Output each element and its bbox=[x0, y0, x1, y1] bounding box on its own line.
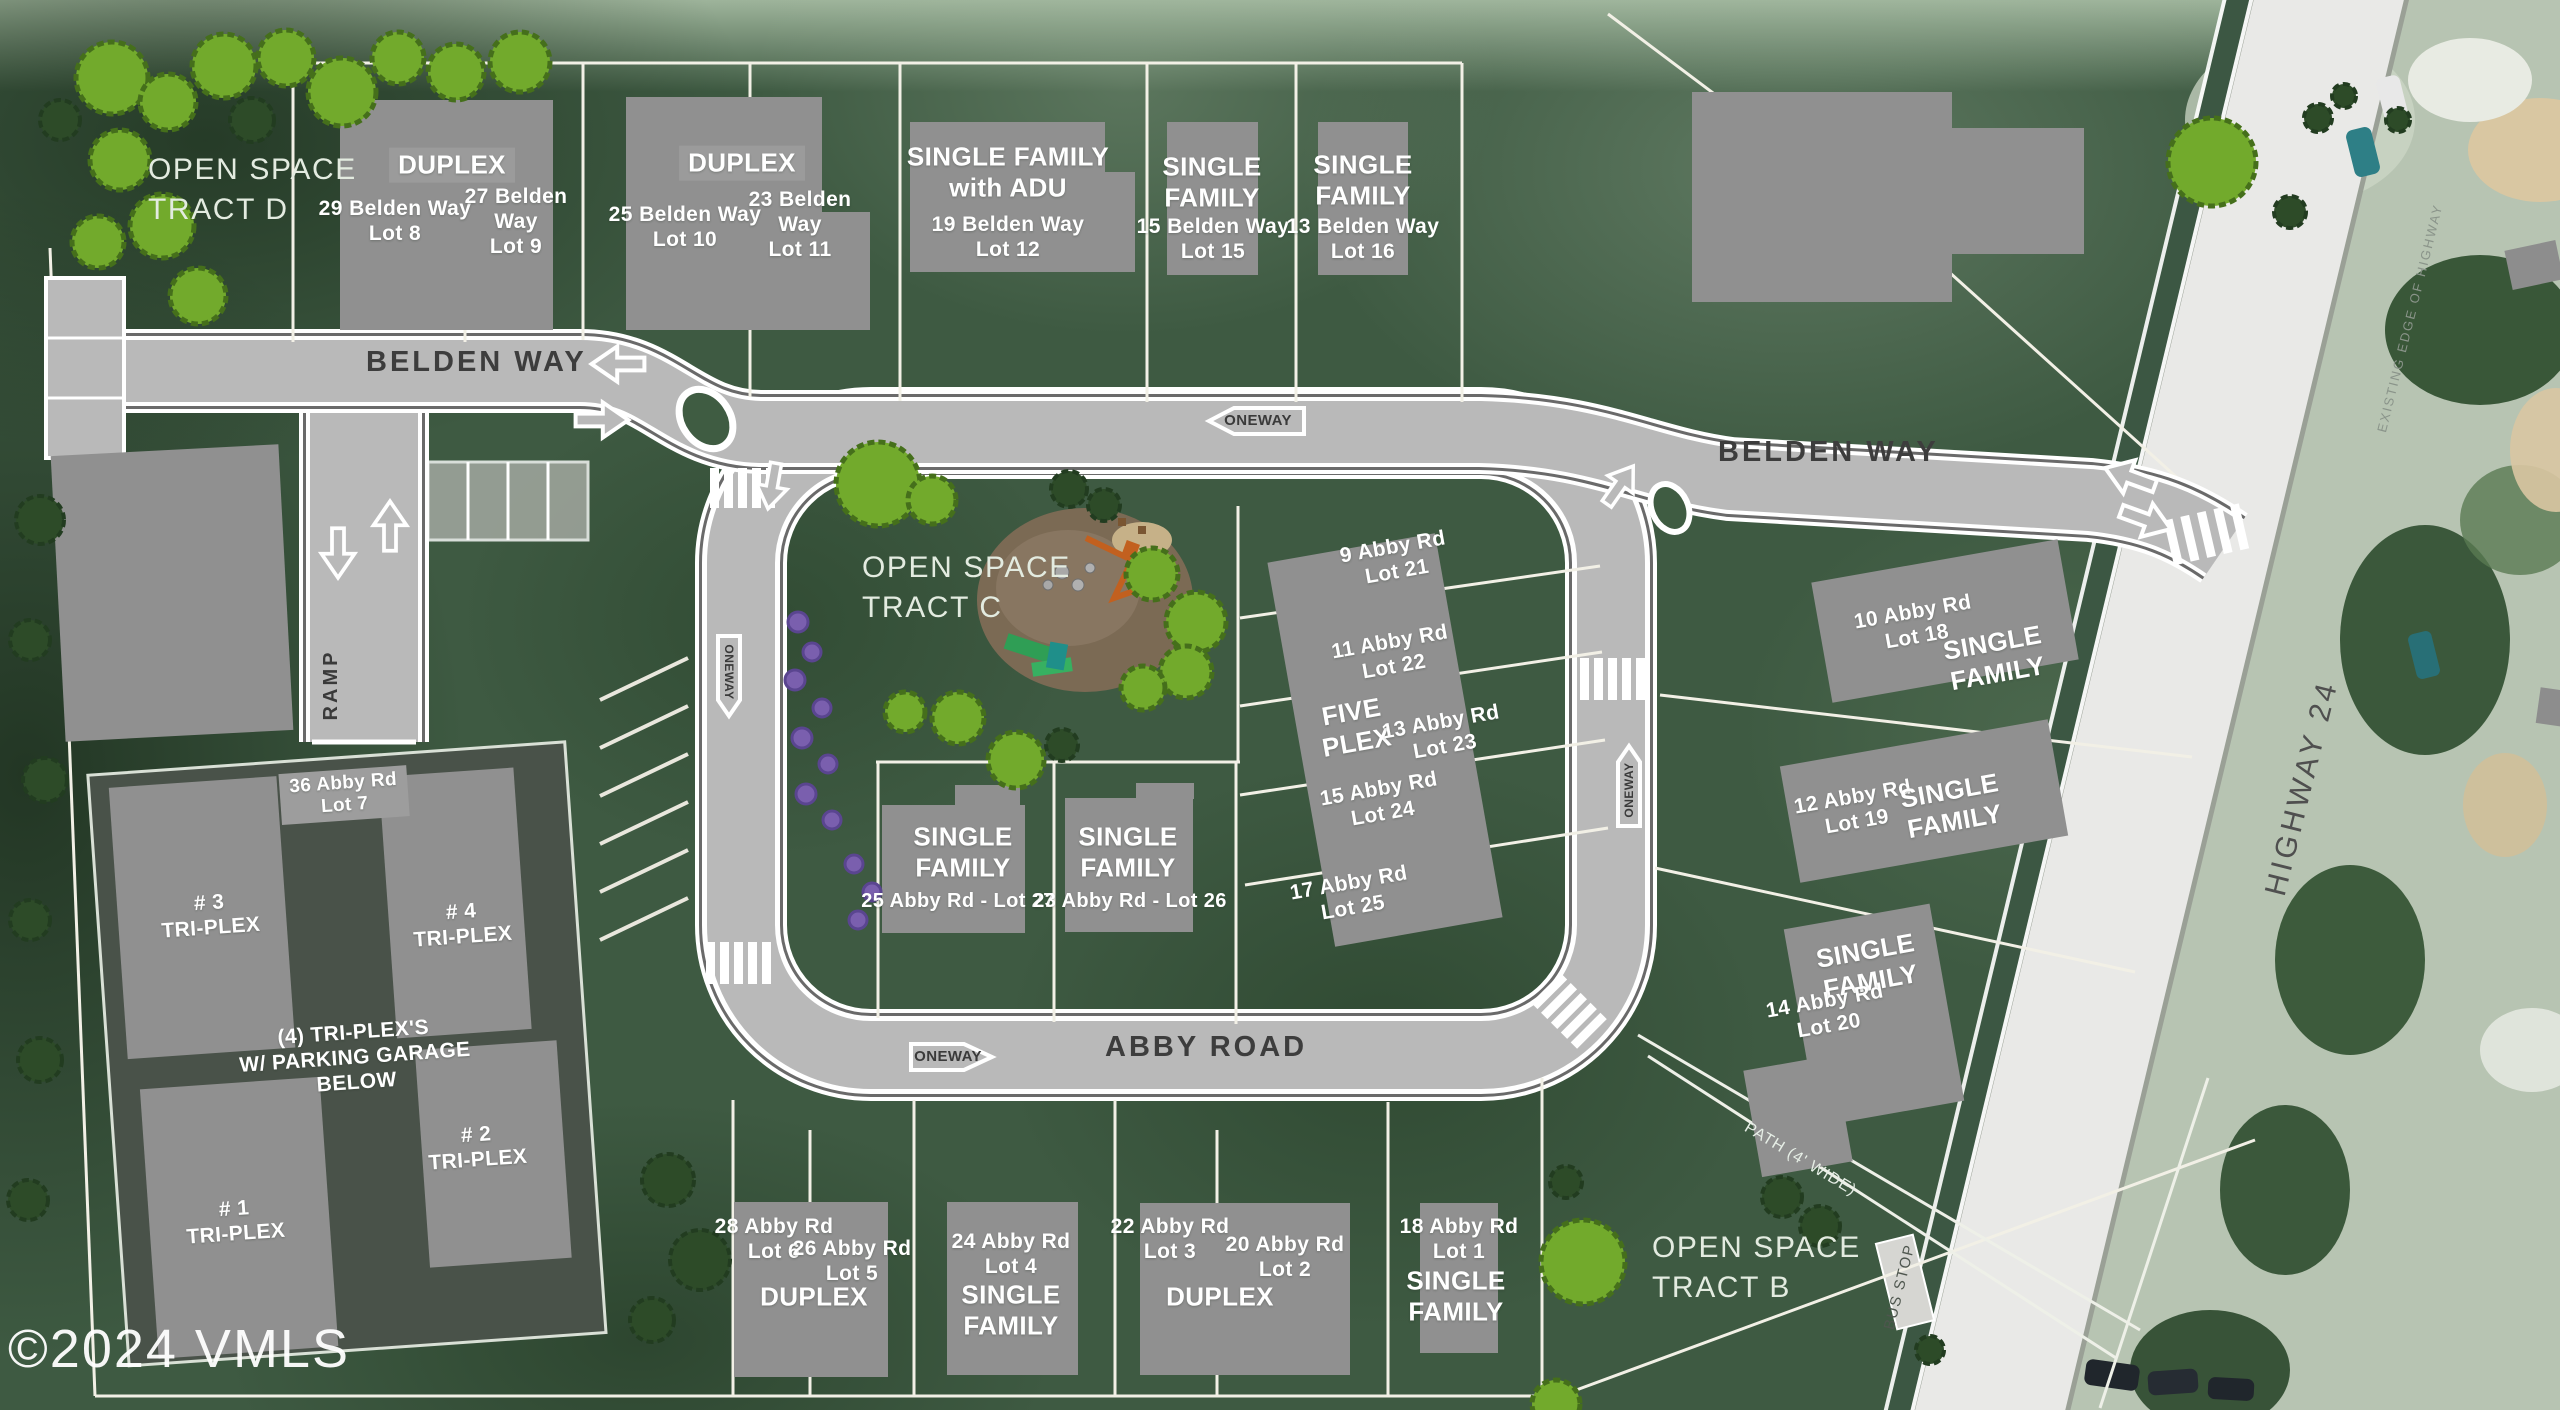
oneway-top-label: ONEWAY bbox=[1224, 412, 1292, 430]
duplex-6-5-label: DUPLEX bbox=[760, 1282, 868, 1313]
open-space-tract-b-label: OPEN SPACETRACT B bbox=[1652, 1228, 1861, 1307]
lot9-label: 27 Belden WayLot 9 bbox=[463, 185, 569, 259]
lot8-label: 29 Belden WayLot 8 bbox=[319, 197, 472, 247]
lot3-label: 22 Abby RdLot 3 bbox=[1111, 1215, 1230, 1265]
lot24-label: 15 Abby RdLot 24 bbox=[1318, 767, 1444, 836]
duplex-3-2-label: DUPLEX bbox=[1166, 1282, 1274, 1313]
lot15-type-label: SINGLEFAMILY bbox=[1162, 151, 1261, 212]
lot12-type-label: SINGLE FAMILYwith ADU bbox=[907, 141, 1109, 202]
triplex-3-label: # 3TRI-PLEX bbox=[159, 888, 261, 944]
belden-way-east-label: BELDEN WAY bbox=[1718, 435, 1939, 469]
belden-way-west-label: BELDEN WAY bbox=[366, 345, 587, 379]
duplex-10-11-label: DUPLEX bbox=[679, 146, 805, 181]
lot25-label: 17 Abby RdLot 25 bbox=[1288, 861, 1414, 930]
lot27-type-label: SINGLEFAMILY bbox=[913, 821, 1012, 882]
lot23-label: 13 Abby RdLot 23 bbox=[1380, 700, 1506, 769]
lot2-label: 20 Abby RdLot 2 bbox=[1226, 1233, 1345, 1283]
oneway-loop-east-label: ONEWAY bbox=[1622, 762, 1636, 817]
lot26-address-label: 23 Abby Rd - Lot 26 bbox=[1033, 890, 1227, 914]
lot21-label: 9 Abby RdLot 21 bbox=[1338, 526, 1452, 593]
lot15-address-label: 15 Belden WayLot 15 bbox=[1137, 215, 1290, 265]
lot4-type-label: SINGLEFAMILY bbox=[961, 1279, 1060, 1340]
lot4-address-label: 24 Abby RdLot 4 bbox=[952, 1230, 1071, 1280]
triplex-2-label: # 2TRI-PLEX bbox=[426, 1120, 528, 1176]
oneway-abby-label: ONEWAY bbox=[914, 1048, 982, 1066]
abby-road-label: ABBY ROAD bbox=[1105, 1030, 1307, 1064]
lot19-type-label: SINGLEFAMILY bbox=[1898, 767, 2006, 845]
highway-24-label: HIGHWAY 24 bbox=[2258, 676, 2346, 899]
open-space-tract-c-label: OPEN SPACETRACT C bbox=[862, 548, 1071, 627]
lot12-address-label: 19 Belden WayLot 12 bbox=[932, 213, 1085, 263]
triplex-note-label: (4) TRI-PLEX'SW/ PARKING GARAGEBELOW bbox=[237, 1013, 473, 1103]
lot7-label: 36 Abby RdLot 7 bbox=[278, 765, 409, 825]
lot10-label: 25 Belden WayLot 10 bbox=[609, 203, 762, 253]
lot11-label: 23 Belden WayLot 11 bbox=[747, 188, 853, 262]
triplex-4-label: # 4TRI-PLEX bbox=[411, 897, 513, 953]
lot1-type-label: SINGLEFAMILY bbox=[1406, 1265, 1505, 1326]
oneway-loop-west-label: ONEWAY bbox=[722, 644, 736, 699]
watermark: ©2024 VMLS bbox=[8, 1318, 350, 1382]
site-plan: OPEN SPACETRACT D OPEN SPACETRACT C OPEN… bbox=[0, 0, 2560, 1410]
path-width-label: PATH (4' WIDE) bbox=[1740, 1119, 1859, 1201]
lot16-address-label: 13 Belden WayLot 16 bbox=[1287, 215, 1440, 265]
bus-stop-label: BUS STOP bbox=[1881, 1242, 1919, 1331]
lot26-type-label: SINGLEFAMILY bbox=[1078, 821, 1177, 882]
lot27-address-label: 25 Abby Rd - Lot 27 bbox=[861, 890, 1055, 914]
lot5-label: 26 Abby RdLot 5 bbox=[793, 1237, 912, 1287]
duplex-8-9-label: DUPLEX bbox=[389, 148, 515, 183]
lot20-address-label: 14 Abby RdLot 20 bbox=[1764, 979, 1890, 1048]
lot1-address-label: 18 Abby RdLot 1 bbox=[1400, 1215, 1519, 1265]
existing-edge-of-highway-label: EXISTING EDGE OF HIGHWAY bbox=[2374, 202, 2446, 434]
lot16-type-label: SINGLEFAMILY bbox=[1313, 149, 1412, 210]
ramp-label: RAMP bbox=[320, 650, 344, 721]
triplex-1-label: # 1TRI-PLEX bbox=[184, 1194, 286, 1250]
lot22-label: 11 Abby RdLot 22 bbox=[1330, 620, 1454, 689]
